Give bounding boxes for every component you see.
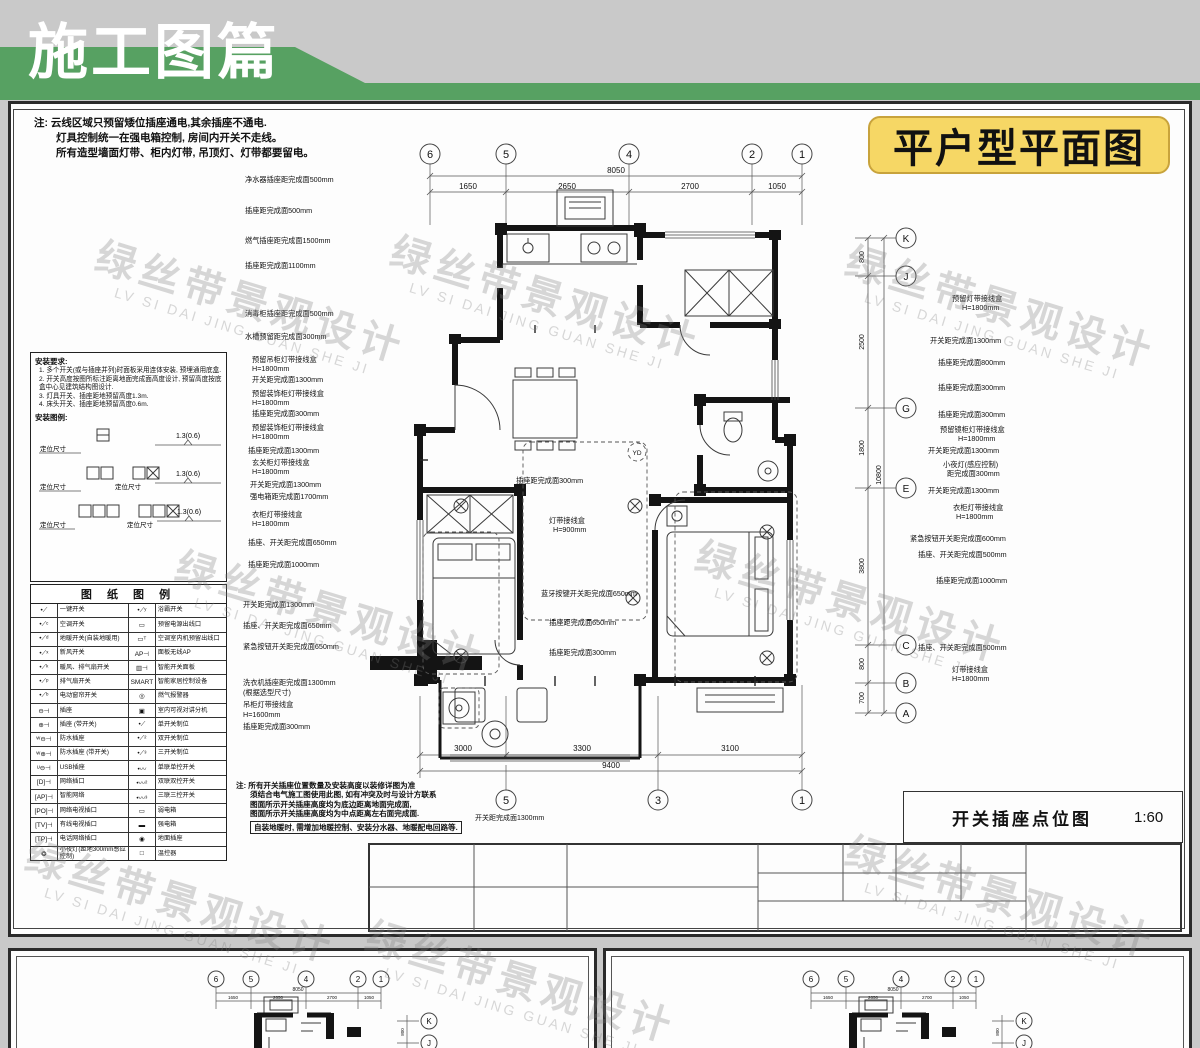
strong-current-box-icon: ▬ [129, 818, 156, 831]
legend-row: ❂小夜灯(距地300mm感应控制)□温控器 [31, 847, 226, 860]
grid-bubble-label: J [904, 272, 909, 283]
position-label: 定位尺寸 [40, 482, 67, 491]
note-boxed: 自装地暖时, 需增加地暖控制、安装分水器、地暖配电回路等. [250, 821, 462, 834]
legend-label: 室内可视对讲分机 [156, 704, 226, 717]
grid-bubble-label: 2 [356, 975, 361, 984]
right-annotation: 插座距完成面300mm [938, 411, 1005, 418]
dim-seg: 1650 [823, 995, 834, 1000]
right-annotation: H=1800mm [952, 675, 989, 682]
legend-label: 暖风、排气扇开关 [58, 661, 129, 674]
grid-bubble-label: K [426, 1017, 432, 1026]
left-annotation: H=1800mm [252, 468, 289, 475]
grid-bubble-label: B [903, 679, 910, 690]
grid-right: K J G E C B A 800 2500 1800 3800 800 700… [855, 228, 916, 723]
smart-home-device-icon: SMART [129, 675, 156, 688]
video-intercom-icon: ▣ [129, 704, 156, 717]
waterproof-socket-icon: ᵂ⊖⊣ [31, 733, 58, 746]
legend-row: [D]⊣网络插口•〰²双联双控开关 [31, 776, 226, 790]
dim-seg: 800 [995, 1028, 1000, 1036]
one-gang-one-way-switch-icon: •〰 [129, 761, 156, 774]
right-annotation: 衣柜灯带接线盒 [953, 504, 1003, 511]
legend-label: 三联三控开关 [156, 790, 226, 803]
fresh-air-switch-icon: •⟋ˣ [31, 647, 58, 660]
legend-label: 面板无线AP [156, 647, 226, 660]
left-annotation: 开关距完成面1300mm [250, 481, 321, 488]
legend-title: 图 纸 图 例 [31, 585, 226, 604]
legend-label: 防水插座 (带开关) [58, 747, 129, 760]
wireless-ap-panel-icon: AP⊣ [129, 647, 156, 660]
legend-row: •⟋一键开关•⟋ʸ浴霸开关 [31, 604, 226, 618]
grid-bubble-label: 5 [503, 149, 509, 161]
position-label: 定位尺寸 [40, 520, 67, 529]
plan-annotation: 蓝牙按键开关距完成面650mm [541, 590, 637, 597]
height-label: 1.3(0.6) [176, 433, 200, 440]
legend-row: ⊖⊣插座▣室内可视对讲分机 [31, 704, 226, 718]
plan-annotation: 插座距完成面300mm [516, 477, 583, 484]
left-annotation: 强电箱距完成面1700mm [250, 493, 328, 500]
general-notes: 注: 云线区域只预留矮位插座通电,其余插座不通电. 灯具控制统一在强电箱控制, … [34, 116, 314, 162]
right-annotation: 距完成面300mm [947, 470, 1000, 477]
legend-label: 单联单控开关 [156, 761, 226, 774]
right-annotation: 插座、开关距完成面500mm [918, 644, 1007, 651]
mini-plan: 6 5 4 2 1 8050 1650 2650 2700 1050 K J 8… [11, 957, 594, 1048]
grid-bubble-label: 2 [951, 975, 956, 984]
dim-seg: 1800 [859, 440, 866, 456]
grid-bubble-label: 4 [899, 975, 904, 984]
yd-cloud-tag: YD [628, 443, 646, 461]
single-switch-position-icon: •⟋ [129, 718, 156, 731]
legend-label: 网络插口 [58, 776, 129, 789]
left-annotation: 插座距完成面300mm [252, 410, 319, 417]
grid-top: 6 5 4 2 1 8050 1650 2650 2700 1050 [420, 144, 812, 225]
left-annotation: 插座距完成面500mm [245, 207, 312, 214]
install-box-title: 安装要求: [35, 356, 222, 367]
left-annotation: H=1600mm [243, 711, 280, 718]
dim-total: 8050 [887, 987, 898, 993]
smart-network-icon: [AP]⊣ [31, 790, 58, 803]
legend-row: •⟋ᵖ排气扇开关SMART智能家居控制设备 [31, 675, 226, 689]
legend-row: •⟋ᵇ电动窗帘开关◎燃气报警器 [31, 690, 226, 704]
legend-label: 空调开关 [58, 618, 129, 631]
legend-label: 单开关制位 [156, 718, 226, 731]
right-annotation: 插座距完成面1000mm [936, 577, 1007, 584]
grid-bubble-label: K [1021, 1017, 1027, 1026]
right-annotation: 预留镜柜灯带接线盒 [940, 426, 1005, 433]
height-label: 1.3(0.6) [176, 471, 200, 478]
drawing-scale: 1:60 [1134, 809, 1163, 826]
dim-total-top: 8050 [607, 166, 625, 175]
legend-label: 电话网络插口 [58, 833, 129, 846]
dim-total-right: 10800 [876, 465, 883, 485]
curtain-motor-switch-icon: •⟋ᵇ [31, 690, 58, 703]
legend-row: ⊕⊣插座 (带开关)•⟋单开关制位 [31, 718, 226, 732]
drawing-title: 开关插座点位图 [952, 805, 1092, 830]
grid-bubble-label: A [903, 709, 910, 720]
plan-annotation: 灯带接线盒 [549, 517, 585, 524]
legend-label: 弱电箱 [156, 804, 226, 817]
legend-label: 排气扇开关 [58, 675, 129, 688]
dim-seg: 3300 [573, 744, 591, 753]
socket-icon: ⊖⊣ [31, 704, 58, 717]
right-annotation: 预留灯带接线盒 [952, 295, 1002, 302]
preview-sheet-right: 6 5 4 2 1 8050 1650 2650 2700 1050 K J 8… [603, 948, 1192, 1048]
network-port-icon: [D]⊣ [31, 776, 58, 789]
grid-bubble-label: 1 [799, 795, 805, 807]
left-annotation: 吊柜灯带接线盒 [243, 701, 293, 708]
legend-label: 小夜灯(距地300mm感应控制) [58, 847, 129, 860]
legend-row: [TV]⊣有线电视插口▬强电箱 [31, 818, 226, 832]
right-annotation: 紧急按钮开关距完成面600mm [910, 535, 1006, 542]
grid-bubble-label: 1 [974, 975, 979, 984]
left-annotation: 插座距完成面1100mm [245, 262, 316, 269]
grid-bubble-label: K [903, 234, 910, 245]
left-annotation: 开关距完成面1300mm [252, 376, 323, 383]
legend-row: •⟋ᵈ地暖开关(自装地暖用)▭ᵀ空调室内机预留出线口 [31, 633, 226, 647]
install-legend-label: 安装图例: [35, 412, 222, 423]
dim-seg: 1650 [459, 182, 477, 191]
install-item: 4. 床头开关、插座距地预留高度0.6m. [39, 401, 222, 410]
legend-label: 智能家居控制设备 [156, 675, 226, 688]
legend-label: 地面插座 [156, 833, 226, 846]
grid-bubble-label: G [902, 404, 910, 415]
floor-plan: 6 5 4 2 1 8050 1650 2650 2700 1050 [335, 140, 935, 840]
floor-heating-switch-icon: •⟋ᵈ [31, 633, 58, 646]
legend-row: •⟋ᵏ暖风、排气扇开关▥⊣智能开关面板 [31, 661, 226, 675]
grid-bubble-label: 6 [427, 149, 433, 161]
floor-socket-icon: ◉ [129, 833, 156, 846]
grid-bubble-label: 3 [655, 795, 661, 807]
right-annotation: 插座、开关距完成面500mm [918, 551, 1007, 558]
installation-requirements-box: 安装要求: 1. 多个开关(或与插座并列)时面板采用连体安装, 预埋通用底盒. … [30, 352, 227, 582]
grid-bubble-label: 5 [249, 975, 254, 984]
left-annotation: 水槽预留距完成面300mm [245, 333, 326, 340]
grid-bubble-label: J [1022, 1039, 1026, 1048]
legend-label: 燃气报警器 [156, 690, 226, 703]
socket-with-switch-icon: ⊕⊣ [31, 718, 58, 731]
legend-label: 三开关制位 [156, 747, 226, 760]
legend-label: 地暖开关(自装地暖用) [58, 633, 129, 646]
plan-annotation: H=900mm [553, 526, 586, 533]
legend-row: [TP]⊣电话网络插口◉地面插座 [31, 833, 226, 847]
left-annotation: 插座距完成面300mm [243, 723, 310, 730]
install-diagrams: 1.3(0.6) 1.3(0.6) 1.3(0.6) 定位尺寸 定位尺寸 定位尺… [35, 423, 223, 539]
left-annotation: 玄关柜灯带接线盒 [252, 459, 310, 466]
height-label: 1.3(0.6) [177, 509, 201, 516]
right-annotation: 插座距完成面300mm [938, 384, 1005, 391]
legend-row: ᵂ⊖⊣防水插座•⟋²双开关制位 [31, 733, 226, 747]
right-annotation: 开关距完成面1300mm [928, 447, 999, 454]
yd-label: YD [632, 450, 641, 457]
drawing-title-bar: 开关插座点位图 1:60 [903, 791, 1183, 843]
dim-seg: 1650 [228, 995, 239, 1000]
section-title: 施工图篇 [28, 4, 280, 91]
page: 施工图篇 平户型平面图 注: 云线区域只预留矮位插座通电,其余插座不通电. 灯具… [0, 0, 1200, 1048]
dim-seg: 800 [859, 658, 866, 670]
dim-total: 8050 [292, 987, 303, 993]
legend-row: ᵂ⊕⊣防水插座 (带开关)•⟋³三开关制位 [31, 747, 226, 761]
legend-label: 浴霸开关 [156, 604, 226, 617]
legend-row: •⟋ᶜ空调开关▭预留电源出线口 [31, 618, 226, 632]
legend-label: 网络电视插口 [58, 804, 129, 817]
left-annotation: 插座距完成面1300mm [248, 447, 319, 454]
grid-bubble-label: 6 [809, 975, 814, 984]
wall-columns [370, 223, 796, 686]
title-block [368, 843, 1182, 933]
legend-label: 有线电视插口 [58, 818, 129, 831]
right-annotation: 灯带接线盒 [952, 666, 988, 673]
left-annotation: 插座距完成面1000mm [248, 561, 319, 568]
legend-label: 强电箱 [156, 818, 226, 831]
left-annotation: 消毒柜插座距完成面500mm [245, 310, 334, 317]
position-label: 定位尺寸 [115, 482, 142, 491]
legend-label: 电动窗帘开关 [58, 690, 129, 703]
dim-seg: 3100 [721, 744, 739, 753]
night-light-icon: ❂ [31, 847, 58, 860]
legend-label: 智能开关面板 [156, 661, 226, 674]
dim-seg: 800 [400, 1028, 405, 1036]
legend-label: 温控器 [156, 847, 226, 860]
legend-rows: •⟋一键开关•⟋ʸ浴霸开关•⟋ᶜ空调开关▭预留电源出线口•⟋ᵈ地暖开关(自装地暖… [31, 604, 226, 860]
left-annotation: 净水器插座距完成面500mm [245, 176, 334, 183]
thermostat-icon: □ [129, 847, 156, 860]
grid-bubble-label: 1 [379, 975, 384, 984]
reserved-power-outlet-icon: ▭ [129, 618, 156, 631]
install-item: 3. 灯具开关、插座距地预留高度1.3m. [39, 393, 222, 402]
dim-seg: 2700 [327, 995, 338, 1000]
two-gang-two-way-switch-icon: •〰² [129, 776, 156, 789]
left-annotation: 紧急按钮开关距完成面650mm [243, 643, 339, 650]
left-annotation: H=1800mm [252, 520, 289, 527]
one-key-switch-icon: •⟋ [31, 604, 58, 617]
note-line: 图面所示开关插座高度均为中点距离左右面完成面. [250, 809, 462, 818]
legend-label: 双开关制位 [156, 733, 226, 746]
catv-port-icon: [TV]⊣ [31, 818, 58, 831]
note-line: 注: 云线区域只预留矮位插座通电,其余插座不通电. [34, 116, 314, 131]
waterproof-socket-with-switch-icon: ᵂ⊕⊣ [31, 747, 58, 760]
legend-label: 预留电源出线口 [156, 618, 226, 631]
left-annotation: 预留装饰柜灯带接线盒 [252, 390, 324, 397]
grid-bubble-label: 6 [214, 975, 219, 984]
note-line: 灯具控制统一在强电箱控制, 房间内开关不走线。 [56, 131, 314, 146]
legend-label: 新风开关 [58, 647, 129, 660]
grid-bottom: 3000 3300 3100 9400 5 3 1 开关距完成面1300mm [417, 685, 812, 822]
grid-bubble-label: J [427, 1039, 431, 1048]
right-annotation: 开关距完成面1300mm [930, 337, 1001, 344]
dim-seg: 1050 [768, 182, 786, 191]
left-annotation: (根据选型尺寸) [243, 689, 291, 696]
legend-label: 空调室内机预留出线口 [156, 633, 226, 646]
grid-bubble-label: 5 [844, 975, 849, 984]
dim-seg: 1050 [959, 995, 970, 1000]
bottom-note: 开关距完成面1300mm [475, 813, 544, 822]
grid-bubble-label: 5 [503, 795, 509, 807]
legend-row: [AP]⊣智能网络•〰³三联三控开关 [31, 790, 226, 804]
legend-row: ᵁ⊖⊣USB插座•〰单联单控开关 [31, 761, 226, 775]
legend-label: 防水插座 [58, 733, 129, 746]
left-annotation: 预留装饰柜灯带接线盒 [252, 424, 324, 431]
double-switch-position-icon: •⟋² [129, 733, 156, 746]
left-annotation: 衣柜灯带接线盒 [252, 511, 302, 518]
right-annotation: 插座距完成面800mm [938, 359, 1005, 366]
plan-annotation: 插座距完成面300mm [549, 649, 616, 656]
dim-seg: 700 [859, 692, 866, 704]
grid-bubble-label: 4 [304, 975, 309, 984]
revision-clouds [423, 442, 797, 728]
note-line: 须结合电气施工图使用此图, 如有冲突及时与设计方联系 [250, 790, 462, 799]
heater-exhaust-switch-icon: •⟋ᵏ [31, 661, 58, 674]
dim-seg: 2700 [922, 995, 933, 1000]
right-annotation: H=1800mm [962, 304, 999, 311]
triple-switch-position-icon: •⟋³ [129, 747, 156, 760]
dim-seg: 3800 [859, 558, 866, 574]
note-line: 所有造型墙面灯带、柜内灯带, 吊顶灯、灯带都要留电。 [56, 146, 314, 161]
right-annotation: 开关距完成面1300mm [928, 487, 999, 494]
bottom-notes: 注: 所有开关插座位置数量及安装高度以装修详图为准 须结合电气施工图使用此图, … [236, 781, 462, 834]
dim-seg: 3000 [454, 744, 472, 753]
dim-seg: 800 [859, 251, 866, 263]
legend-label: 插座 [58, 704, 129, 717]
left-annotation: 预留吊柜灯带接线盒 [252, 356, 317, 363]
mini-plan: 6 5 4 2 1 8050 1650 2650 2700 1050 K J 8… [606, 957, 1189, 1048]
install-item: 2. 开关高度按图所标注距离地面完成面高度设计, 预留高度按底盒中心见建筑结构图… [39, 376, 222, 393]
right-annotation: H=1800mm [958, 435, 995, 442]
legend-label: 插座 (带开关) [58, 718, 129, 731]
walls [420, 228, 790, 680]
left-annotation: H=1800mm [252, 365, 289, 372]
three-gang-three-way-switch-icon: •〰³ [129, 790, 156, 803]
dim-seg: 1050 [364, 995, 375, 1000]
left-annotation: H=1800mm [252, 399, 289, 406]
legend-row: •⟋ˣ新风开关AP⊣面板无线AP [31, 647, 226, 661]
grid-bubble-label: 1 [799, 149, 805, 161]
grid-bubble-label: C [902, 641, 909, 652]
left-annotation: 洗衣机插座距完成面1300mm [243, 679, 336, 686]
exhaust-fan-switch-icon: •⟋ᵖ [31, 675, 58, 688]
left-annotation: 开关距完成面1300mm [243, 601, 314, 608]
left-annotation: 插座、开关距完成面650mm [243, 622, 332, 629]
legend-label: 双联双控开关 [156, 776, 226, 789]
network-tv-port-icon: [PO]⊣ [31, 804, 58, 817]
phone-network-port-icon: [TP]⊣ [31, 833, 58, 846]
grid-bubble-label: E [903, 484, 910, 495]
legend-label: 智能网络 [58, 790, 129, 803]
legend-label: 一键开关 [58, 604, 129, 617]
dim-seg: 2500 [859, 334, 866, 350]
left-annotation: H=1800mm [252, 433, 289, 440]
install-item: 1. 多个开关(或与插座并列)时面板采用连体安装, 预埋通用底盒. [39, 367, 222, 376]
grid-bubble-label: 4 [626, 149, 632, 161]
smart-switch-panel-icon: ▥⊣ [129, 661, 156, 674]
left-annotation: 插座、开关距完成面650mm [248, 539, 337, 546]
ac-indoor-unit-outlet-icon: ▭ᵀ [129, 633, 156, 646]
preview-sheet-left: 6 5 4 2 1 8050 1650 2650 2700 1050 K J 8… [8, 948, 597, 1048]
right-annotation: 小夜灯(感应控制) [943, 461, 998, 468]
legend-label: USB插座 [58, 761, 129, 774]
grid-bubble-label: 2 [749, 149, 755, 161]
bathroom-heater-switch-icon: •⟋ʸ [129, 604, 156, 617]
legend-table: 图 纸 图 例 •⟋一键开关•⟋ʸ浴霸开关•⟋ᶜ空调开关▭预留电源出线口•⟋ᵈ地… [30, 584, 227, 861]
dim-seg: 2700 [681, 182, 699, 191]
plan-type-badge: 平户型平面图 [868, 116, 1170, 174]
legend-row: [PO]⊣网络电视插口▭弱电箱 [31, 804, 226, 818]
dim-total-bottom: 9400 [602, 761, 620, 770]
right-annotation: H=1800mm [956, 513, 993, 520]
position-label: 定位尺寸 [127, 520, 154, 529]
weak-current-box-icon: ▭ [129, 804, 156, 817]
ac-switch-icon: •⟋ᶜ [31, 618, 58, 631]
left-annotation: 燃气插座距完成面1500mm [245, 237, 330, 244]
position-label: 定位尺寸 [40, 444, 67, 453]
usb-socket-icon: ᵁ⊖⊣ [31, 761, 58, 774]
gas-alarm-icon: ◎ [129, 690, 156, 703]
plan-annotation: 插座距完成面650mm [549, 619, 616, 626]
